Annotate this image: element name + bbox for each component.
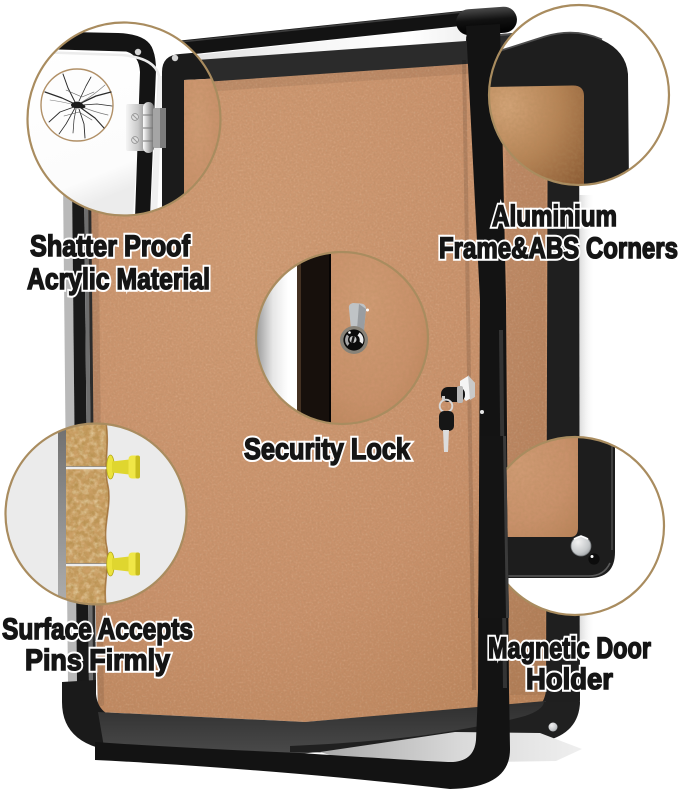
svg-text:Frame&ABS Corners: Frame&ABS Corners [439, 232, 678, 265]
svg-text:Holder: Holder [526, 663, 613, 696]
svg-text:Shatter Proof: Shatter Proof [30, 230, 191, 263]
svg-text:Pins Firmly: Pins Firmly [25, 644, 170, 677]
svg-text:Acrylic Material: Acrylic Material [27, 263, 210, 296]
svg-text:Surface Accepts: Surface Accepts [2, 613, 193, 646]
svg-text:Magnetic Door: Magnetic Door [488, 632, 651, 665]
svg-text:Security Lock: Security Lock [244, 433, 410, 466]
svg-text:Aluminium: Aluminium [492, 200, 617, 233]
